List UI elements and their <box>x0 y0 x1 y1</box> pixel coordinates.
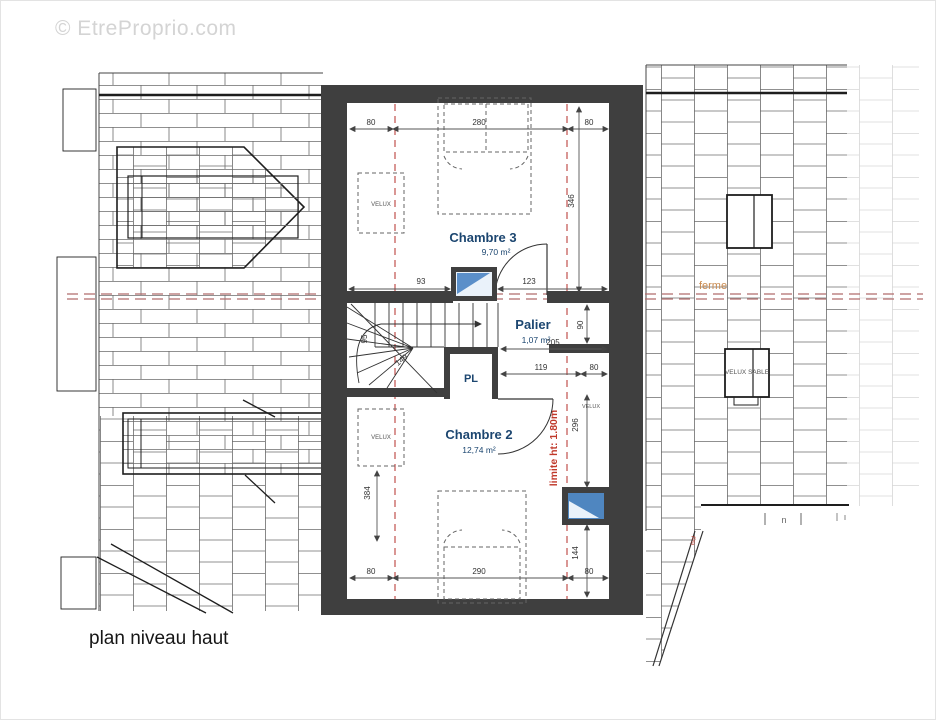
dim-bottom-mid: 290 <box>472 567 486 576</box>
dim-346: 346 <box>567 194 576 208</box>
cutoff-drawing-fragments: n isol <box>690 513 845 546</box>
height-limit-label: limite ht: 1.80m <box>548 410 560 486</box>
dim-296: 296 <box>571 418 580 432</box>
dim-90: 90 <box>576 320 585 329</box>
dim-93: 93 <box>417 277 426 286</box>
plan-caption: plan niveau haut <box>89 628 228 650</box>
dim-bottom-right: 80 <box>585 567 594 576</box>
left-roof-hatch <box>57 73 323 613</box>
left-edge-tab <box>57 257 96 391</box>
dim-bottom-left: 80 <box>367 567 376 576</box>
left-dormer <box>123 413 323 474</box>
floor-plan-canvas: VELUX SABLE limite ht: 1.80m ferme <box>1 1 936 720</box>
left-edge-tab <box>63 89 96 151</box>
dim-119: 119 <box>535 363 548 372</box>
right-roof-hatch: VELUX SABLE <box>646 65 919 666</box>
chambre2-velux-window <box>562 487 610 525</box>
velux-label: VELUX <box>371 202 391 208</box>
dim-384: 384 <box>363 486 372 500</box>
roof-velux-sable-window <box>725 349 769 405</box>
velux-sable-label: VELUX SABLE <box>725 369 770 376</box>
dim-144: 144 <box>571 546 580 560</box>
velux-label: VELUX <box>582 404 600 410</box>
dim-80: 80 <box>590 363 599 372</box>
dim-top-left: 80 <box>367 118 376 127</box>
velux-label: VELUX <box>371 435 391 441</box>
room-chambre2-label: Chambre 2 <box>445 427 512 442</box>
room-chambre3-label: Chambre 3 <box>449 230 516 245</box>
ferme-label: ferme <box>699 280 727 292</box>
room-chambre2-area: 12,74 m² <box>462 445 496 455</box>
dim-top-right: 80 <box>585 118 594 127</box>
room-chambre3-area: 9,70 m² <box>482 247 511 257</box>
left-edge-tab <box>61 557 96 609</box>
room-palier-label: Palier <box>515 317 550 332</box>
n-mark: n <box>781 515 786 525</box>
room-palier-area: 1,07 m² <box>522 335 551 345</box>
dim-95: 95 <box>360 334 369 343</box>
closet-pl-label: PL <box>464 373 478 385</box>
dim-top-mid: 280 <box>472 118 486 127</box>
roof-velux-window <box>727 195 772 248</box>
dim-123: 123 <box>522 277 536 286</box>
floor-plan-page: © EtreProprio.com <box>0 0 936 720</box>
interior-window <box>451 267 497 301</box>
